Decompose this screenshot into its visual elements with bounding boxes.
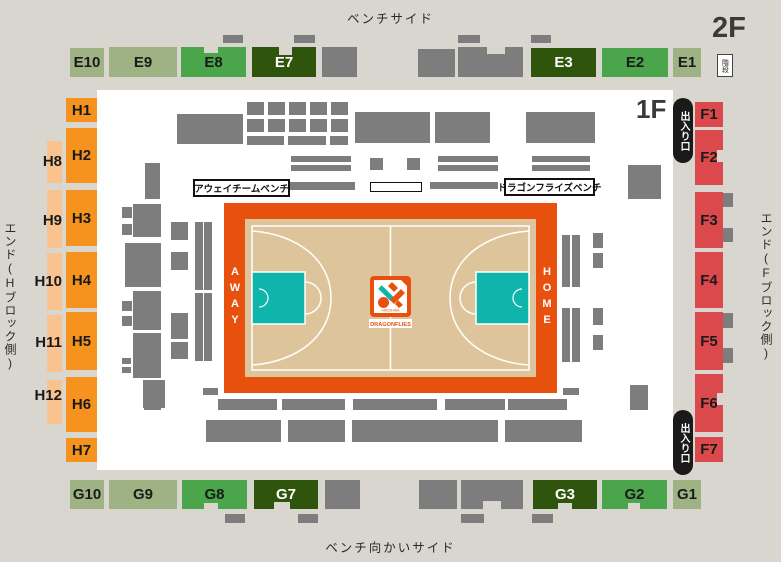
- furniture-block: [628, 165, 661, 199]
- furniture-block: [458, 35, 480, 43]
- seat-H5[interactable]: H5: [66, 312, 97, 370]
- furniture-block: [723, 313, 733, 328]
- furniture-block: [171, 313, 188, 339]
- seat-G10[interactable]: G10: [70, 480, 104, 509]
- furniture-block: [171, 342, 188, 359]
- seat-E9[interactable]: E9: [109, 47, 177, 77]
- seat-E3[interactable]: E3: [531, 48, 596, 77]
- dragonflies-logo: HIROSHIMA DRAGONFLIES: [369, 276, 412, 328]
- f-end-label: エンド(Fブロック側): [760, 212, 772, 361]
- seat-F4[interactable]: F4: [695, 252, 723, 308]
- logo-main-text: DRAGONFLIES: [370, 322, 411, 328]
- floor-label-1f: 1F: [636, 96, 666, 122]
- seat-H6[interactable]: H6: [66, 377, 97, 432]
- furniture-block: [532, 156, 590, 162]
- notch: [483, 501, 501, 509]
- furniture-block: [171, 222, 188, 240]
- furniture-block: [438, 165, 498, 171]
- notch: [204, 47, 218, 53]
- seat-H4[interactable]: H4: [66, 252, 97, 308]
- notch: [717, 150, 723, 162]
- basketball-court: HIROSHIMA DRAGONFLIES: [224, 203, 557, 393]
- seat-H12-label: H12: [22, 387, 62, 403]
- stairs-badge: 階段: [717, 54, 733, 77]
- notch: [274, 502, 290, 510]
- scorer-table: [370, 182, 422, 192]
- furniture-block: [407, 158, 420, 170]
- furniture-block: [526, 112, 595, 143]
- h-end-label: エンド(Hブロック側): [4, 222, 16, 371]
- furniture-block: [204, 222, 212, 290]
- furniture-block: [419, 480, 457, 509]
- seat-G9[interactable]: G9: [109, 480, 177, 509]
- furniture-block: [218, 399, 277, 410]
- away-side-label: AWAY: [227, 258, 242, 338]
- furniture-block: [204, 293, 212, 361]
- furniture-block: [310, 102, 327, 115]
- exit-badge: 出入り口: [673, 98, 693, 163]
- notch: [279, 47, 292, 55]
- furniture-block: [322, 47, 357, 77]
- furniture-block: [122, 358, 131, 364]
- bench-side-label: ベンチサイド: [0, 8, 781, 27]
- furniture-block: [298, 514, 318, 523]
- key-right: [476, 272, 529, 324]
- furniture-block: [203, 388, 218, 395]
- furniture-block: [330, 136, 348, 145]
- furniture-block: [418, 49, 455, 77]
- furniture-block: [268, 119, 285, 132]
- furniture-block: [593, 233, 603, 248]
- furniture-block: [289, 102, 306, 115]
- seat-F1[interactable]: F1: [695, 102, 723, 127]
- furniture-block: [125, 243, 161, 287]
- furniture-block: [445, 399, 505, 410]
- furniture-block: [145, 163, 160, 199]
- furniture-block: [310, 119, 327, 132]
- furniture-block: [291, 156, 351, 162]
- furniture-block: [461, 514, 484, 523]
- notch: [204, 503, 218, 509]
- furniture-block: [532, 165, 590, 171]
- furniture-block: [531, 35, 551, 43]
- furniture-block: [206, 420, 281, 442]
- exit-badge: 出入り口: [673, 410, 693, 475]
- notch: [717, 393, 723, 405]
- furniture-block: [122, 301, 132, 311]
- furniture-block: [563, 388, 579, 395]
- furniture-block: [353, 399, 437, 410]
- furniture-block: [288, 420, 345, 442]
- seat-H7[interactable]: H7: [66, 438, 97, 462]
- home-bench-label: ドラゴンフライズベンチ: [504, 178, 595, 196]
- furniture-block: [593, 253, 603, 268]
- furniture-block: [331, 119, 348, 132]
- notch: [628, 503, 640, 509]
- furniture-block: [225, 514, 245, 523]
- furniture-block: [294, 35, 315, 43]
- furniture-block: [430, 182, 498, 189]
- notch: [487, 47, 505, 54]
- seat-H2[interactable]: H2: [66, 128, 97, 183]
- furniture-block: [177, 114, 243, 144]
- furniture-block: [325, 480, 360, 509]
- furniture-block: [195, 222, 203, 290]
- furniture-block: [723, 348, 733, 363]
- furniture-block: [630, 385, 648, 410]
- away-bench-label: アウェイチームベンチ: [193, 179, 290, 197]
- furniture-block: [247, 136, 284, 145]
- seat-H11-label: H11: [22, 334, 62, 350]
- furniture-block: [133, 333, 161, 378]
- seat-E10[interactable]: E10: [70, 48, 104, 77]
- arena-seat-map: ベンチサイド ベンチ向かいサイド エンド(Hブロック側) エンド(Fブロック側)…: [0, 0, 781, 562]
- furniture-block: [593, 308, 603, 325]
- floor-label-2f: 2F: [712, 14, 746, 43]
- notch: [558, 503, 572, 509]
- furniture-block: [572, 308, 580, 362]
- furniture-block: [122, 224, 132, 235]
- seat-H9-label: H9: [22, 212, 62, 228]
- home-side-label: HOME: [539, 258, 554, 338]
- furniture-block: [223, 35, 243, 43]
- furniture-block: [435, 112, 490, 143]
- seat-F3[interactable]: F3: [695, 192, 723, 248]
- furniture-block: [247, 102, 264, 115]
- furniture-block: [438, 156, 498, 162]
- logo-basketball: [378, 297, 389, 308]
- furniture-block: [122, 367, 131, 373]
- furniture-block: [290, 182, 355, 190]
- furniture-block: [508, 399, 567, 410]
- seat-E2[interactable]: E2: [602, 48, 668, 77]
- seat-H10-label: H10: [22, 273, 62, 289]
- furniture-block: [289, 119, 306, 132]
- furniture-block: [282, 399, 345, 410]
- furniture-block: [133, 204, 161, 237]
- seat-E1[interactable]: E1: [673, 48, 701, 77]
- furniture-block: [723, 193, 733, 207]
- seat-H1[interactable]: H1: [66, 98, 97, 122]
- furniture-block: [562, 235, 570, 287]
- furniture-block: [331, 102, 348, 115]
- furniture-block: [122, 207, 132, 218]
- furniture-block: [268, 102, 285, 115]
- furniture-block: [562, 308, 570, 362]
- seat-H8-label: H8: [22, 153, 62, 169]
- furniture-block: [433, 420, 498, 442]
- seat-F7[interactable]: F7: [695, 437, 723, 462]
- furniture-block: [505, 420, 582, 442]
- furniture-block: [171, 252, 188, 270]
- furniture-block: [532, 514, 553, 523]
- furniture-block: [291, 165, 351, 171]
- furniture-block: [195, 293, 203, 361]
- furniture-block: [122, 316, 132, 326]
- seat-F5[interactable]: F5: [695, 312, 723, 370]
- seat-G1[interactable]: G1: [673, 480, 701, 509]
- seat-H3[interactable]: H3: [66, 190, 97, 246]
- opposite-bench-side-label: ベンチ向かいサイド: [0, 537, 781, 556]
- key-left: [252, 272, 305, 324]
- furniture-block: [370, 158, 383, 170]
- furniture-block: [133, 291, 161, 330]
- furniture-block: [247, 119, 264, 132]
- furniture-block: [355, 112, 430, 143]
- furniture-block: [352, 420, 437, 442]
- furniture-block: [288, 136, 326, 145]
- furniture-block: [593, 335, 603, 350]
- furniture-block: [723, 228, 733, 242]
- furniture-block: [572, 235, 580, 287]
- logo-sub-text: HIROSHIMA: [381, 309, 400, 313]
- furniture-block: [144, 385, 161, 410]
